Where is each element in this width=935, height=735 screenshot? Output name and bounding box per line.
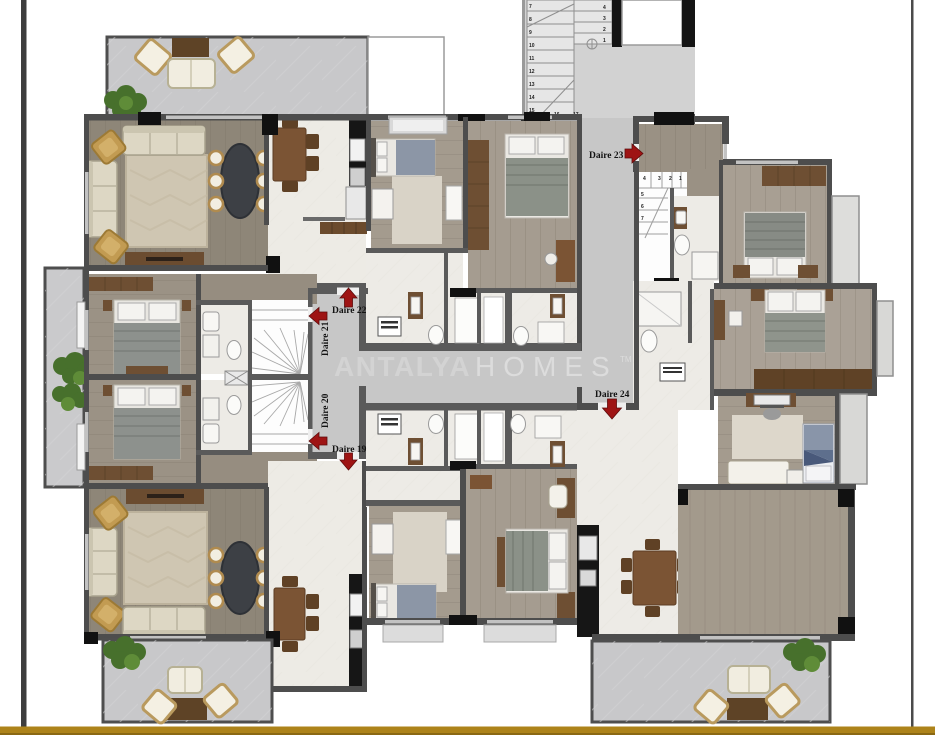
svg-text:3: 3	[658, 176, 661, 182]
svg-text:7: 7	[641, 216, 644, 222]
svg-text:Daire 21: Daire 21	[321, 321, 331, 356]
svg-text:9: 9	[529, 30, 532, 36]
svg-text:2: 2	[669, 176, 672, 182]
svg-text:TM: TM	[620, 355, 632, 364]
svg-text:7: 7	[529, 4, 532, 10]
svg-text:1: 1	[603, 38, 606, 44]
svg-text:10: 10	[529, 43, 535, 49]
svg-text:Daire 23: Daire 23	[589, 151, 624, 161]
svg-text:14: 14	[529, 95, 535, 101]
svg-text:11: 11	[529, 56, 535, 62]
svg-text:ANTALYA: ANTALYA	[334, 351, 471, 382]
svg-text:3: 3	[603, 16, 606, 22]
svg-text:13: 13	[529, 82, 535, 88]
svg-text:Daire 24: Daire 24	[595, 390, 630, 400]
svg-text:4: 4	[603, 5, 606, 11]
svg-text:1: 1	[679, 176, 682, 182]
svg-text:8: 8	[529, 17, 532, 23]
svg-text:Daire 20: Daire 20	[321, 393, 331, 428]
svg-text:HOMES: HOMES	[475, 351, 618, 382]
svg-text:5: 5	[641, 192, 644, 198]
svg-text:6: 6	[641, 204, 644, 210]
svg-text:2: 2	[603, 27, 606, 33]
svg-text:Daire 22: Daire 22	[332, 306, 367, 316]
svg-text:12: 12	[529, 69, 535, 75]
svg-text:4: 4	[643, 176, 646, 182]
